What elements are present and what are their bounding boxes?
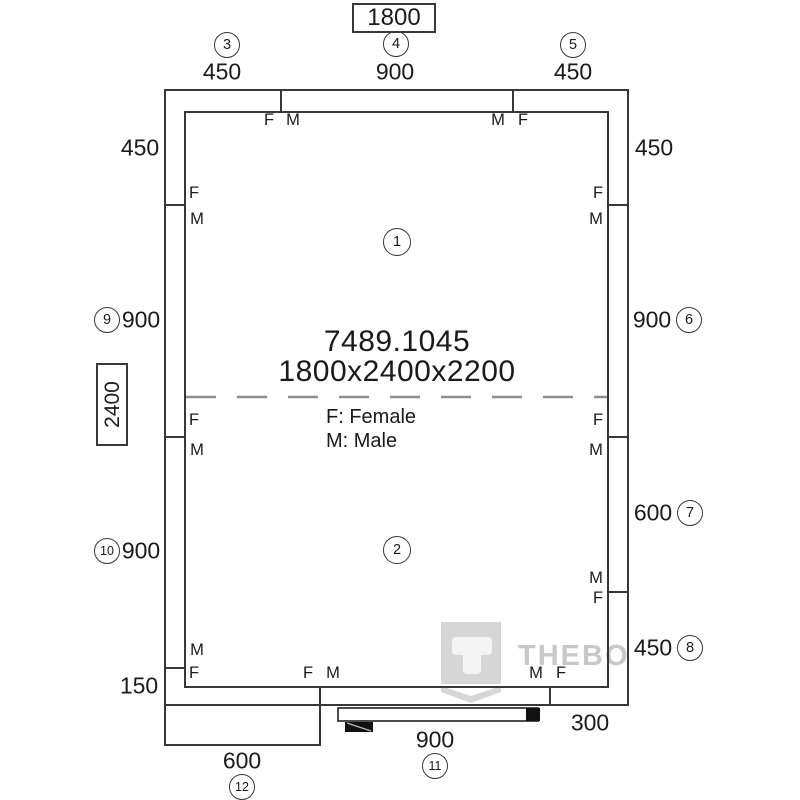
fm-label: M <box>190 442 204 459</box>
overall-width-box: 1800 <box>352 3 436 33</box>
product-size: 1800x2400x2200 <box>278 357 515 387</box>
room-number-2: 2 <box>383 536 411 564</box>
fm-label: F <box>593 412 603 429</box>
fm-label: F <box>189 412 199 429</box>
fm-label: F <box>189 665 199 682</box>
fm-label: M <box>589 442 603 459</box>
legend-female: F: Female <box>326 407 416 427</box>
dim-left-900-lower: 900 <box>122 540 160 563</box>
panel-number-11: 11 <box>422 753 448 779</box>
fm-label: M <box>589 211 603 228</box>
dim-top-center: 900 <box>376 61 414 84</box>
panel-number-3: 3 <box>214 32 240 58</box>
dim-bottom-600: 600 <box>223 750 261 773</box>
fm-label: F <box>556 665 566 682</box>
door-leaf <box>338 708 538 721</box>
panel-number-4: 4 <box>383 31 409 57</box>
dim-right-600: 600 <box>634 502 672 525</box>
dim-left-900-upper: 900 <box>122 309 160 332</box>
fm-label: M <box>529 665 543 682</box>
door-hinge <box>526 708 540 721</box>
dim-left-150: 150 <box>120 675 158 698</box>
dim-right-450-lower: 450 <box>634 637 672 660</box>
fm-label: F <box>189 185 199 202</box>
fm-label: M <box>190 642 204 659</box>
fm-label: F <box>593 185 603 202</box>
inner-wall <box>185 112 608 687</box>
dim-left-450: 450 <box>121 137 159 160</box>
overall-depth-value: 2400 <box>102 381 123 428</box>
dim-top-left: 450 <box>203 61 241 84</box>
fm-label: M <box>326 665 340 682</box>
dim-bottom-900: 900 <box>416 729 454 752</box>
fm-label: F <box>518 112 528 129</box>
dim-top-right: 450 <box>554 61 592 84</box>
panel-12-outline <box>165 705 320 745</box>
overall-width-value: 1800 <box>367 6 420 30</box>
fm-label: M <box>589 570 603 587</box>
dim-right-300: 300 <box>571 712 609 735</box>
fm-label: M <box>190 211 204 228</box>
fm-label: M <box>286 112 300 129</box>
overall-depth-box: 2400 <box>96 363 128 446</box>
product-code: 7489.1045 <box>324 327 470 357</box>
fm-label: M <box>491 112 505 129</box>
legend-male: M: Male <box>326 431 397 451</box>
room-number-1: 1 <box>383 228 411 256</box>
floor-plan-sheet: THEBO 1800 2400 3 4 5 <box>0 0 800 800</box>
dim-right-900: 900 <box>633 309 671 332</box>
fm-label: F <box>264 112 274 129</box>
panel-number-5: 5 <box>560 32 586 58</box>
thebo-logo-icon: THEBO <box>441 622 630 703</box>
panel-number-7: 7 <box>677 500 703 526</box>
panel-number-8: 8 <box>677 635 703 661</box>
fm-label: F <box>303 665 313 682</box>
panel-number-9: 9 <box>94 307 120 333</box>
fm-label: F <box>593 590 603 607</box>
panel-number-6: 6 <box>676 307 702 333</box>
panel-number-12: 12 <box>229 774 255 800</box>
dim-right-450-upper: 450 <box>635 137 673 160</box>
panel-number-10: 10 <box>94 538 120 564</box>
